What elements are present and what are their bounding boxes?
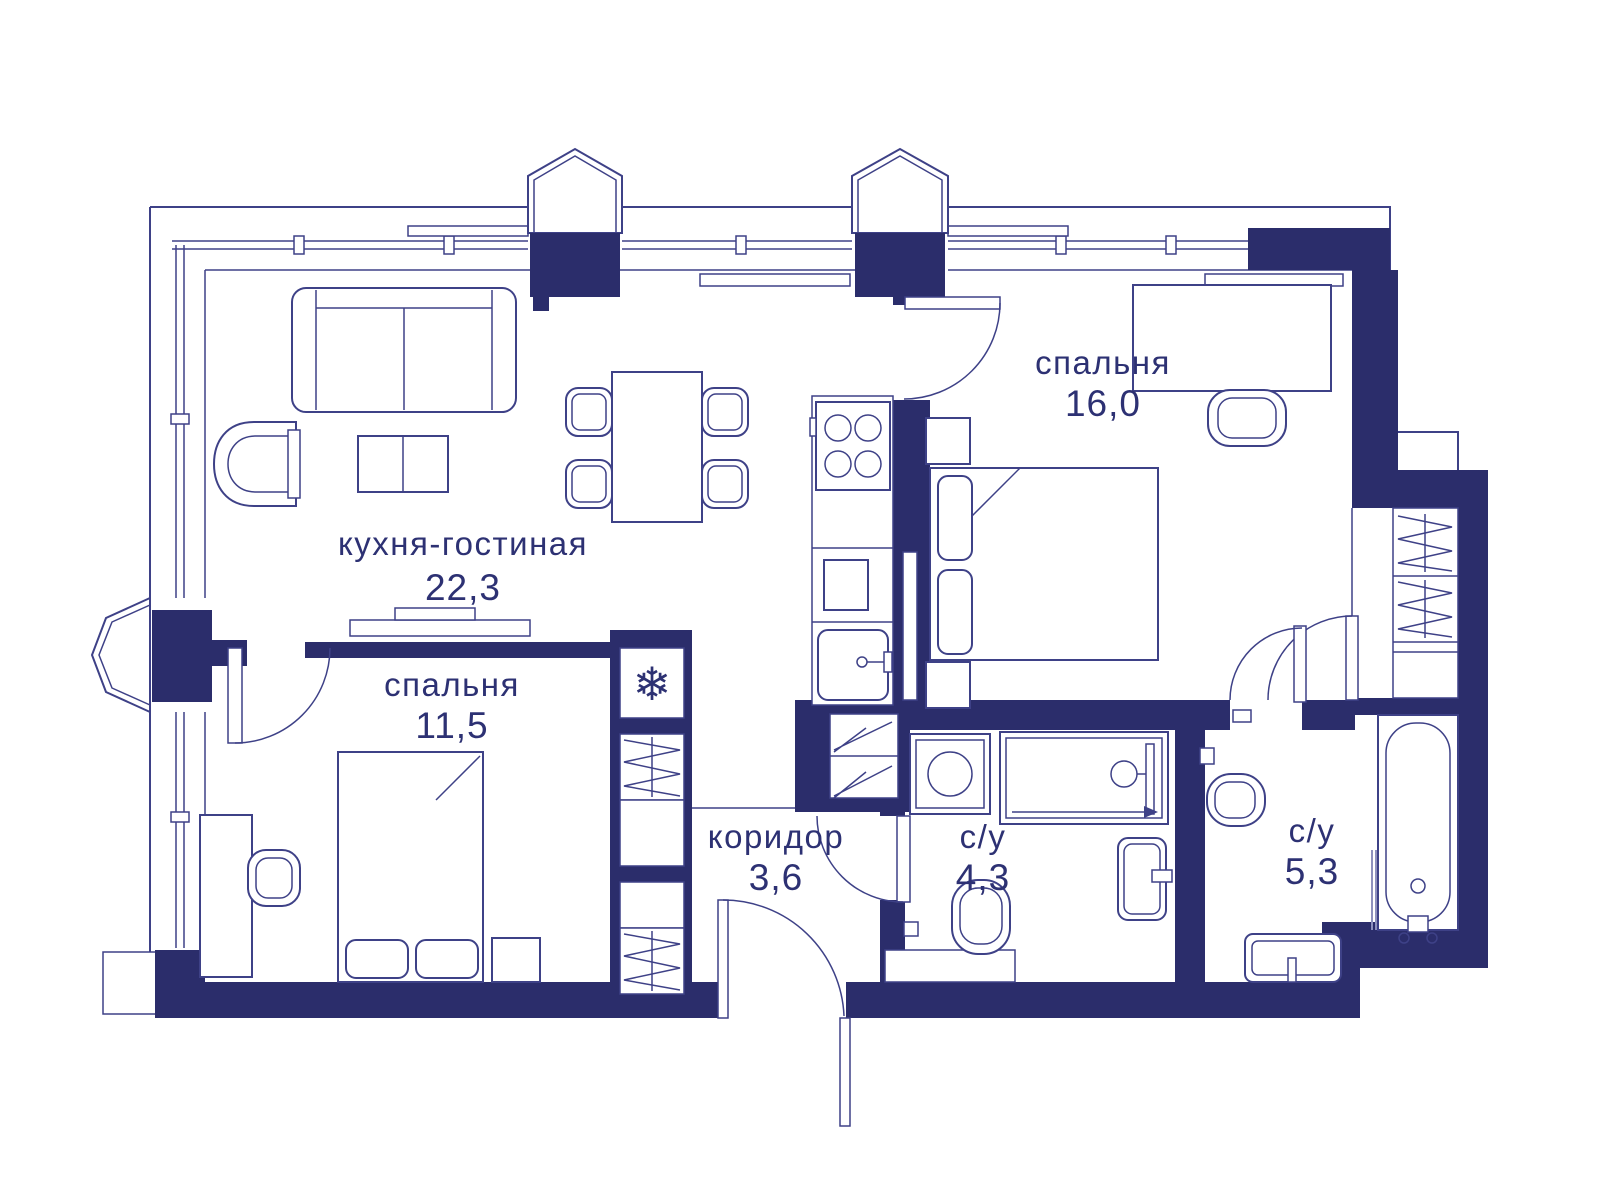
dining-chair — [702, 460, 748, 508]
door-leaf — [897, 816, 910, 902]
vanity-sink — [1245, 934, 1341, 982]
glass-screen — [1372, 850, 1376, 930]
bay-window-top-1 — [528, 149, 622, 233]
shower — [1000, 732, 1168, 824]
pillow — [938, 476, 972, 560]
room-area: 22,3 — [425, 567, 501, 608]
shelf-cell — [620, 882, 684, 928]
room-label-bathroom-4: с/у 4,3 — [956, 818, 1010, 898]
room-label-corridor: коридор 3,6 — [708, 818, 844, 898]
dining-chair — [566, 460, 612, 508]
oven — [824, 560, 868, 610]
room-area: 5,3 — [1285, 851, 1339, 892]
window-sill — [948, 226, 1068, 236]
flush-plate — [1233, 710, 1251, 722]
floor-plan: ❄ — [0, 0, 1600, 1200]
room-name: кухня-гостиная — [338, 525, 588, 562]
bed — [338, 752, 483, 982]
room-name: коридор — [708, 818, 844, 855]
window-sill — [408, 226, 528, 236]
door-arc — [1268, 616, 1352, 700]
wall-bottom-left — [155, 950, 205, 1018]
armchair — [214, 422, 300, 506]
door-hall-wardrobe — [1268, 616, 1358, 700]
bay-window-top-2 — [852, 149, 948, 233]
corridor-storage — [830, 714, 898, 798]
facade-step — [103, 952, 157, 1014]
dining-table — [612, 372, 702, 522]
sofa — [292, 288, 516, 412]
room-area: 3,6 — [749, 857, 803, 898]
door-bedroom16 — [904, 297, 1000, 399]
desk-chair — [1208, 390, 1286, 446]
wall-nook-bath5 — [1355, 698, 1458, 715]
window-mullion — [736, 236, 746, 254]
pillow — [346, 940, 408, 978]
wall-bathrooms-top — [1302, 700, 1355, 730]
window-mullion — [294, 236, 304, 254]
entry-door — [718, 900, 850, 1126]
desk-chair — [248, 850, 300, 906]
room-label-bathroom-5: с/у 5,3 — [1285, 812, 1339, 892]
window-mullion — [171, 812, 189, 822]
coffee-table — [358, 436, 448, 492]
door-leaf — [1294, 626, 1306, 702]
bathtub — [1378, 715, 1458, 943]
door-leaf — [228, 648, 242, 743]
bed — [930, 468, 1158, 660]
pillow — [416, 940, 478, 978]
door-arc — [723, 900, 844, 1016]
bay-window-left — [92, 598, 150, 712]
closet-column-cells: ❄ — [620, 648, 684, 994]
washing-machine — [910, 734, 990, 814]
wall-bath4-bath5 — [1175, 700, 1205, 982]
wall-pier — [152, 610, 212, 702]
window-mullion — [171, 414, 189, 424]
door-arc — [904, 303, 1000, 399]
radiator — [700, 274, 850, 286]
wall-top-right — [1248, 228, 1390, 270]
room-area: 11,5 — [415, 705, 488, 746]
kitchen-sink — [818, 630, 892, 700]
shelf-cell — [620, 800, 684, 866]
room-name: спальня — [1035, 344, 1171, 381]
nightstand — [926, 418, 970, 464]
nightstand — [926, 662, 970, 708]
bathroom-shelf — [885, 950, 1015, 982]
door-arc — [1230, 628, 1302, 700]
wall-niche — [903, 552, 917, 700]
room-label-bedroom-11: спальня 11,5 — [384, 666, 520, 746]
door-leaf — [1346, 616, 1358, 700]
tub-faucet — [1408, 916, 1428, 932]
wall-pier — [530, 233, 620, 297]
stove — [810, 402, 890, 490]
desk — [200, 815, 252, 977]
wall-outer-right — [1458, 508, 1488, 968]
floor-plan-page: ❄ — [0, 0, 1600, 1200]
wall-bottom — [846, 982, 1360, 1018]
paper-holder — [904, 922, 918, 936]
window-mullion — [444, 236, 454, 254]
room-name: с/у — [1289, 812, 1336, 849]
pillow — [938, 570, 972, 654]
fridge-snowflake-icon: ❄ — [633, 657, 672, 711]
dining-chair — [702, 388, 748, 436]
wall-right-jog — [1352, 470, 1488, 508]
door-leaf — [718, 900, 728, 1018]
dining-chair — [566, 388, 612, 436]
wall-right — [1352, 270, 1398, 470]
room-name: спальня — [384, 666, 520, 703]
door-leaf — [840, 1018, 850, 1126]
vanity-sink — [1118, 838, 1172, 920]
room-label-kitchen-living: кухня-гостиная 22,3 — [338, 525, 588, 608]
wall-living-bedroom11 — [305, 642, 612, 658]
window-mullion — [1056, 236, 1066, 254]
nightstand — [492, 938, 540, 982]
room-name: с/у — [960, 818, 1007, 855]
door-arc — [235, 648, 330, 743]
paper-holder — [1200, 748, 1214, 764]
tv-console — [350, 608, 530, 636]
door-leaf — [905, 297, 1000, 309]
room-area: 4,3 — [956, 857, 1010, 898]
window-mullion — [1166, 236, 1176, 254]
room-area: 16,0 — [1065, 383, 1141, 424]
hall-wardrobe — [1393, 508, 1458, 698]
